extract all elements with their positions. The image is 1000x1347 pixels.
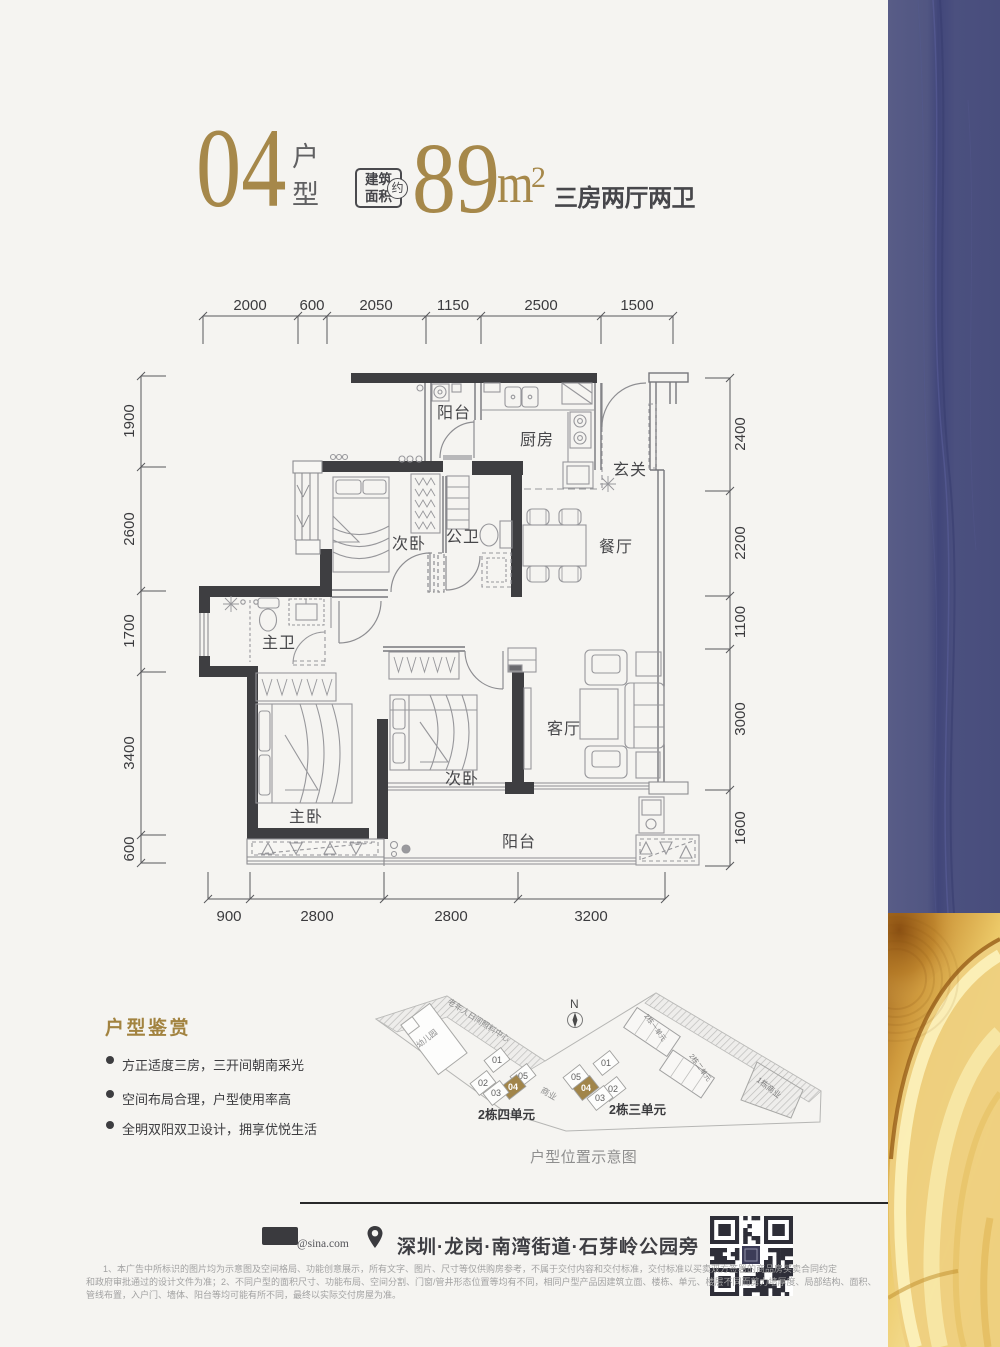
svg-text:厨房: 厨房 [520, 431, 554, 449]
svg-text:2200: 2200 [732, 526, 749, 559]
svg-text:2800: 2800 [300, 908, 333, 925]
svg-text:商业: 商业 [539, 1085, 559, 1102]
svg-text:主卫: 主卫 [262, 634, 296, 652]
svg-text:次卧: 次卧 [445, 770, 479, 788]
svg-text:玄关: 玄关 [613, 461, 647, 479]
svg-text:05: 05 [571, 1072, 581, 1082]
svg-text:600: 600 [299, 297, 324, 314]
svg-text:02: 02 [478, 1078, 488, 1088]
svg-text:客厅: 客厅 [547, 720, 581, 738]
svg-text:600: 600 [121, 836, 138, 861]
svg-text:1500: 1500 [620, 297, 653, 314]
svg-text:03: 03 [595, 1093, 605, 1103]
svg-text:3400: 3400 [121, 736, 138, 769]
svg-text:1700: 1700 [121, 614, 138, 647]
svg-text:阳台: 阳台 [437, 404, 471, 422]
svg-text:3200: 3200 [574, 908, 607, 925]
svg-text:2050: 2050 [359, 297, 392, 314]
svg-text:2栋三单元: 2栋三单元 [609, 1102, 666, 1117]
svg-text:2800: 2800 [434, 908, 467, 925]
svg-text:餐厅: 餐厅 [599, 538, 633, 556]
svg-text:01: 01 [601, 1058, 611, 1068]
svg-text:2000: 2000 [233, 297, 266, 314]
svg-text:1600: 1600 [732, 811, 749, 844]
svg-text:阳台: 阳台 [502, 833, 536, 851]
svg-text:04: 04 [581, 1083, 591, 1093]
svg-text:主卧: 主卧 [289, 808, 323, 826]
svg-text:1900: 1900 [121, 404, 138, 437]
svg-text:N: N [570, 997, 579, 1011]
svg-text:900: 900 [216, 908, 241, 925]
svg-text:次卧: 次卧 [392, 535, 426, 553]
svg-text:2600: 2600 [121, 512, 138, 545]
svg-text:04: 04 [508, 1082, 518, 1092]
svg-text:公卫: 公卫 [446, 529, 480, 546]
svg-text:1100: 1100 [732, 606, 749, 638]
svg-text:3000: 3000 [732, 702, 749, 735]
svg-text:1150: 1150 [437, 297, 469, 314]
svg-text:01: 01 [492, 1055, 502, 1065]
svg-text:2400: 2400 [732, 417, 749, 450]
svg-text:2栋四单元: 2栋四单元 [478, 1107, 535, 1122]
svg-text:2500: 2500 [524, 297, 557, 314]
svg-text:03: 03 [491, 1088, 501, 1098]
